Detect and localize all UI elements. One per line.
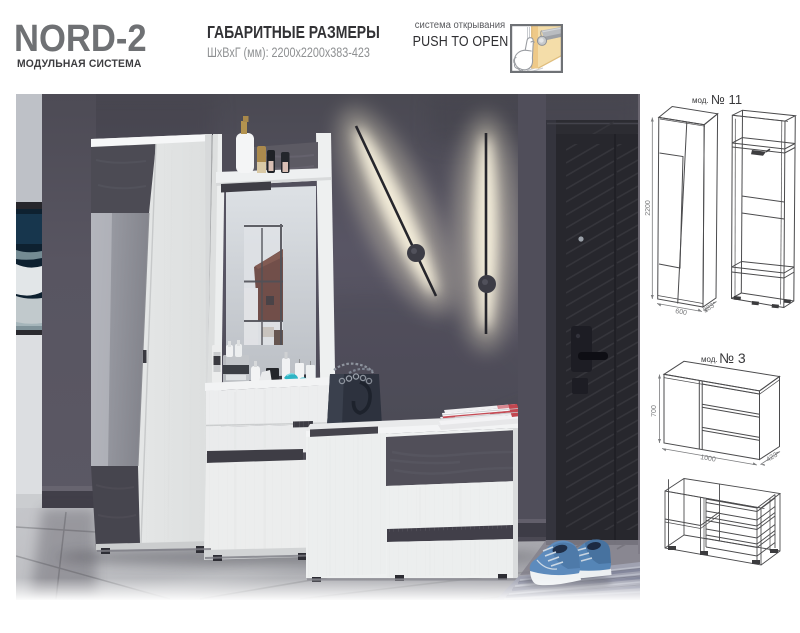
svg-text:2200: 2200 bbox=[645, 200, 652, 216]
svg-text:1000: 1000 bbox=[700, 454, 717, 464]
svg-text:600: 600 bbox=[675, 308, 688, 317]
svg-text:№ 11: № 11 bbox=[711, 92, 742, 107]
svg-text:383: 383 bbox=[702, 302, 716, 314]
svg-text:700: 700 bbox=[651, 405, 658, 417]
svg-text:мод.: мод. bbox=[701, 355, 718, 364]
svg-text:№ 3: № 3 bbox=[719, 350, 746, 366]
svg-text:мод.: мод. bbox=[692, 96, 709, 105]
